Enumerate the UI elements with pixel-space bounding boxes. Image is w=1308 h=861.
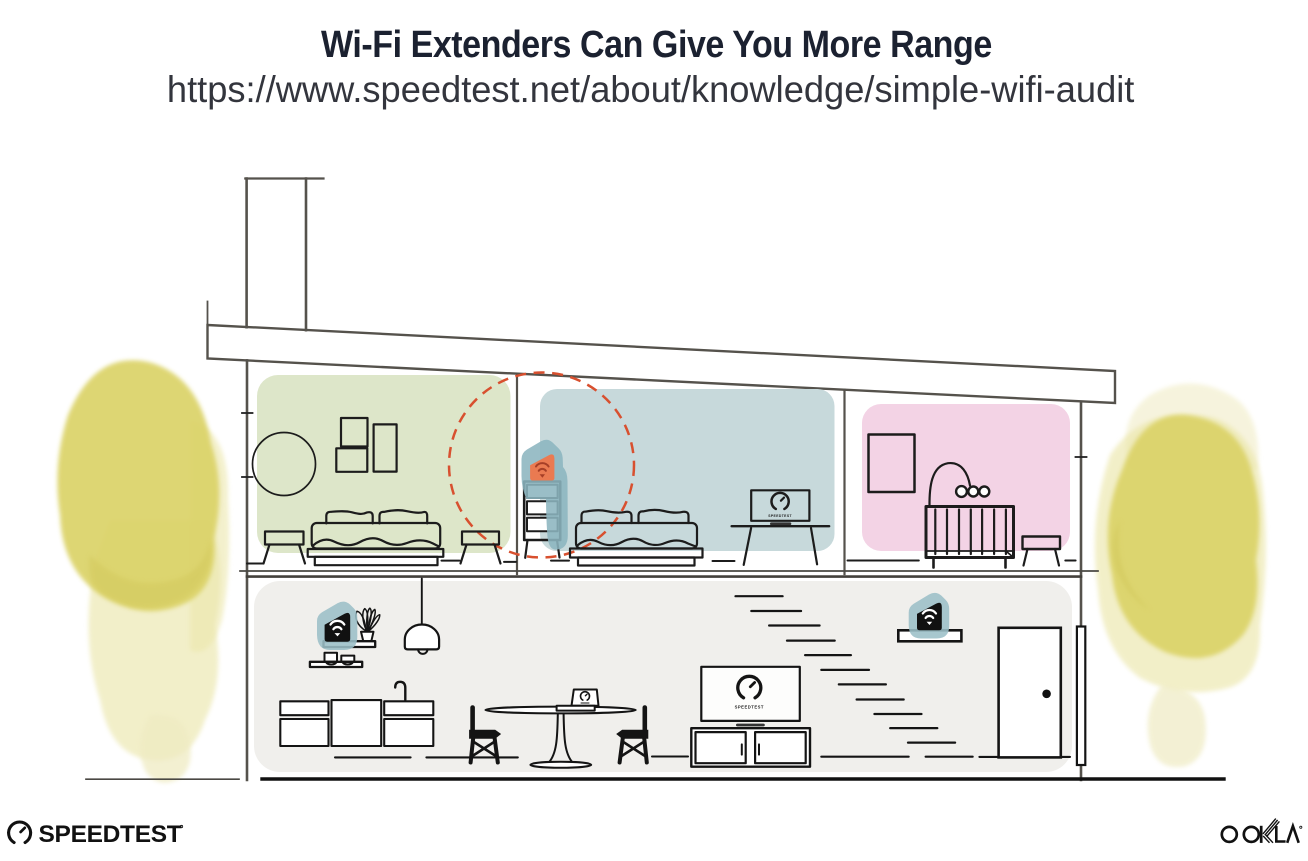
svg-text:SPEEDTEST: SPEEDTEST xyxy=(39,821,182,848)
svg-text:SPEEDTEST: SPEEDTEST xyxy=(735,705,764,710)
svg-text:SPEEDTEST: SPEEDTEST xyxy=(768,514,792,518)
